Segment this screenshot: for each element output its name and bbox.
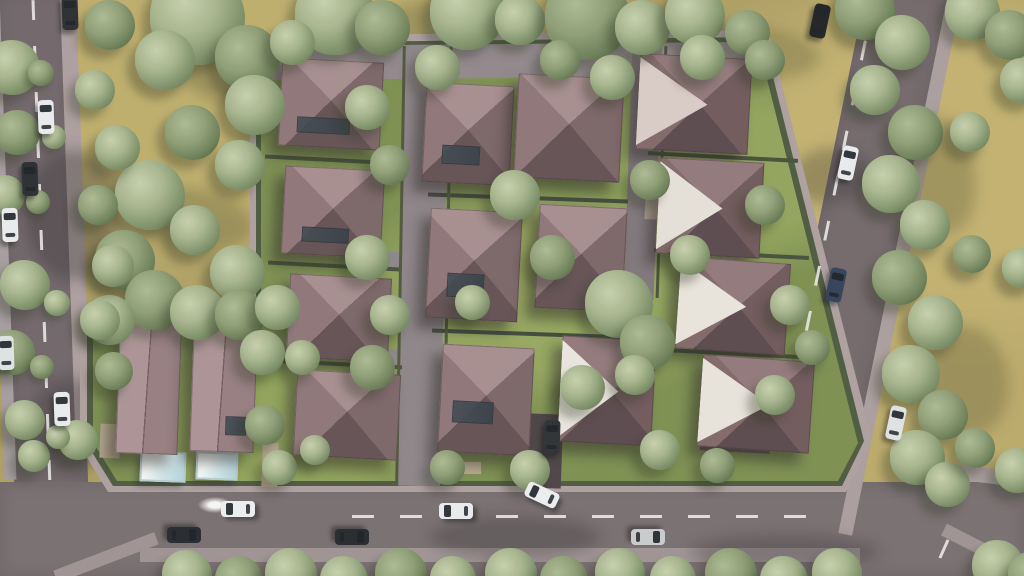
tree — [755, 375, 795, 415]
car-windshield — [39, 105, 51, 113]
car — [631, 529, 665, 545]
tree — [795, 330, 830, 365]
tree — [560, 365, 605, 410]
car-rear-window — [65, 21, 76, 26]
roof-window-panel — [301, 226, 349, 244]
tree — [770, 285, 810, 325]
tree — [95, 125, 140, 170]
car-rear-window — [340, 532, 344, 543]
tree — [165, 105, 220, 160]
car-windshield — [891, 410, 904, 419]
tree — [370, 145, 410, 185]
car-windshield — [0, 341, 12, 349]
car — [221, 501, 255, 517]
tree — [345, 85, 390, 130]
tree — [540, 40, 580, 80]
car-rear-window — [57, 417, 68, 422]
house-c1 — [421, 82, 514, 186]
tree — [908, 295, 963, 350]
tree — [0, 260, 50, 310]
tree — [950, 112, 990, 152]
car-windshield — [529, 484, 541, 498]
tree — [530, 235, 575, 280]
car-rear-window — [464, 506, 468, 517]
tree — [872, 250, 927, 305]
roof-window-panel — [225, 417, 247, 436]
car-rear-window — [828, 292, 840, 299]
house-e1 — [437, 344, 535, 457]
tree — [215, 140, 265, 190]
car — [61, 0, 78, 30]
car-windshield — [63, 1, 75, 9]
tree — [170, 205, 220, 255]
roof-window-panel — [297, 116, 351, 135]
tree — [985, 10, 1024, 60]
car-rear-window — [1, 361, 12, 366]
tree — [80, 300, 120, 340]
tree — [355, 0, 410, 55]
car — [21, 162, 38, 197]
tree — [745, 185, 785, 225]
tree — [18, 440, 50, 472]
car-windshield — [357, 531, 364, 543]
car-windshield — [226, 503, 233, 515]
tree — [135, 30, 195, 90]
tree — [350, 345, 395, 390]
tree — [1000, 58, 1024, 103]
tree — [430, 450, 465, 485]
car-windshield — [189, 529, 196, 541]
tree — [240, 330, 285, 375]
tree — [875, 15, 930, 70]
tree — [300, 435, 330, 465]
car-rear-window — [812, 28, 824, 35]
car — [53, 392, 70, 427]
car-windshield — [843, 150, 856, 159]
tree — [46, 425, 70, 449]
tree — [370, 295, 410, 335]
car — [167, 527, 201, 543]
tree — [925, 462, 970, 507]
tree — [262, 450, 297, 485]
tree — [285, 340, 320, 375]
tree — [5, 400, 45, 440]
tree — [95, 352, 133, 390]
tree — [455, 285, 490, 320]
tree — [245, 405, 285, 445]
tree — [415, 45, 460, 90]
car-rear-window — [246, 504, 250, 515]
tree — [888, 105, 943, 160]
tree — [28, 60, 54, 86]
aerial-neighborhood-render: Aerial 3D render of a suburban residenti… — [0, 0, 1024, 576]
tree — [615, 355, 655, 395]
swimming-pool — [196, 451, 239, 480]
tree — [255, 285, 300, 330]
car — [1, 208, 18, 243]
car — [335, 529, 369, 545]
car-rear-window — [41, 125, 52, 130]
car-rear-window — [172, 530, 176, 541]
car-rear-window — [547, 493, 556, 505]
car-rear-window — [840, 170, 852, 177]
tree — [590, 55, 635, 100]
tree — [615, 0, 670, 55]
tree — [955, 428, 995, 468]
car-windshield — [23, 167, 35, 175]
tree — [490, 170, 540, 220]
car-windshield — [831, 272, 844, 281]
tree — [900, 200, 950, 250]
car — [37, 100, 54, 135]
car-rear-window — [5, 233, 16, 238]
tree — [670, 235, 710, 275]
tree — [630, 160, 670, 200]
car-windshield — [815, 8, 828, 17]
swimming-pool — [139, 451, 186, 483]
tree — [640, 430, 680, 470]
tree — [850, 65, 900, 115]
tree — [75, 70, 115, 110]
tree — [225, 75, 285, 135]
car — [0, 336, 15, 371]
car — [809, 3, 832, 40]
tree — [953, 235, 991, 273]
car — [543, 420, 560, 455]
tree — [680, 35, 725, 80]
car-rear-window — [636, 532, 640, 543]
lane-marking — [352, 515, 832, 518]
tree — [270, 20, 315, 65]
car-windshield — [444, 505, 451, 517]
tree — [700, 448, 735, 483]
tree — [1002, 248, 1024, 288]
tree — [30, 355, 54, 379]
tree — [345, 235, 390, 280]
car-rear-window — [888, 430, 900, 437]
tree — [44, 290, 70, 316]
tree — [92, 245, 134, 287]
car — [439, 503, 473, 519]
roof-window-panel — [452, 400, 494, 424]
tree — [85, 0, 135, 50]
car-rear-window — [546, 445, 557, 450]
car-windshield — [3, 213, 15, 221]
tree — [745, 40, 785, 80]
car-rear-window — [25, 187, 36, 192]
car-windshield — [546, 425, 558, 433]
tree — [78, 185, 118, 225]
roof-window-panel — [442, 145, 480, 166]
car-windshield — [55, 397, 67, 405]
car-windshield — [653, 531, 660, 543]
